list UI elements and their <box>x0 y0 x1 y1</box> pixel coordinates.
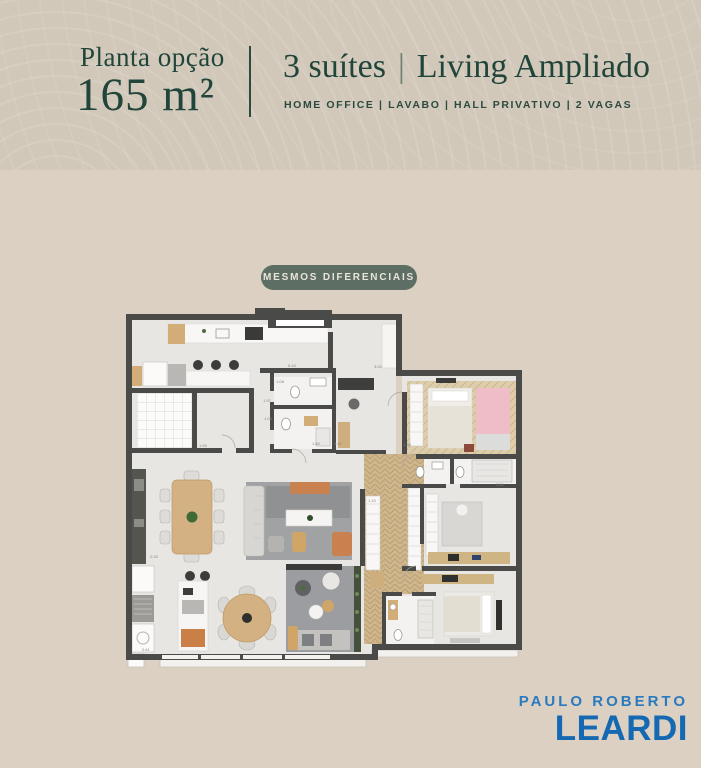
sink-icon <box>310 378 326 386</box>
dim-label: 6.10 <box>288 363 297 368</box>
floor-plan-svg: 6.10 3.02 1.08 1.97 1.09 1.80 1.51 1.90 … <box>120 304 536 668</box>
plant-icon <box>187 512 198 523</box>
sink-icon <box>390 604 396 610</box>
floor-plan: 6.10 3.02 1.08 1.97 1.09 1.80 1.51 1.90 … <box>120 304 536 668</box>
planter-wall <box>354 566 361 652</box>
stool-icon <box>229 360 239 370</box>
shower <box>472 460 512 482</box>
stool-icon <box>185 571 195 581</box>
stool-icon <box>200 571 210 581</box>
bed-pink <box>476 388 510 434</box>
desk <box>338 378 374 390</box>
plan-area-value: 165 m² <box>76 68 215 122</box>
brand-line1: PAULO ROBERTO <box>519 694 688 709</box>
dim-label: 2.20 <box>496 482 505 487</box>
plan-title: 3 suítes|Living Ampliado <box>283 48 650 86</box>
desk <box>428 552 510 564</box>
dim-label: 1.90 <box>199 443 208 448</box>
tv-icon <box>442 575 458 582</box>
brand-logo: PAULO ROBERTO LEARDI <box>519 694 688 746</box>
sink-icon <box>432 462 443 469</box>
stool-icon <box>193 360 203 370</box>
plant-icon <box>202 329 206 333</box>
vertical-divider <box>249 46 251 117</box>
dim-label: 0.33 <box>150 554 159 559</box>
title-separator: | <box>386 48 417 85</box>
plan-features: HOME OFFICE | LAVABO | HALL PRIVATIVO | … <box>284 99 632 111</box>
office-chair <box>349 399 360 410</box>
title-suites: 3 suítes <box>283 48 386 85</box>
kitchen-island <box>178 571 210 651</box>
dim-label: 1.97 <box>263 398 272 403</box>
dim-label: 1.09 <box>264 416 273 421</box>
stool-icon <box>211 360 221 370</box>
brand-line2: LEARDI <box>519 711 688 746</box>
differentials-badge: MESMOS DIFERENCIAIS <box>261 265 417 290</box>
differentials-badge-label: MESMOS DIFERENCIAIS <box>263 272 415 283</box>
dim-label: 1.80 <box>312 441 321 446</box>
toilet-icon <box>291 386 300 398</box>
dim-label: 0.41 <box>142 647 151 652</box>
toilet-icon <box>282 418 291 430</box>
title-living: Living Ampliado <box>417 48 650 85</box>
living-room <box>244 482 352 560</box>
headboard-panel <box>496 600 502 630</box>
dim-label: 1.36 <box>403 442 412 447</box>
dim-label: 1.10 <box>368 498 377 503</box>
toilet-icon <box>416 467 424 478</box>
toilet-icon <box>456 467 464 478</box>
dim-label: 1.51 <box>334 441 343 446</box>
tv-lounge <box>286 564 361 652</box>
dim-label: 3.02 <box>374 364 383 369</box>
toilet-icon <box>394 630 402 641</box>
tv-console <box>286 564 342 570</box>
header-band: Planta opção 165 m² 3 suítes|Living Ampl… <box>0 0 701 170</box>
dim-label: 1.08 <box>276 379 285 384</box>
private-hall-floor <box>137 393 192 448</box>
